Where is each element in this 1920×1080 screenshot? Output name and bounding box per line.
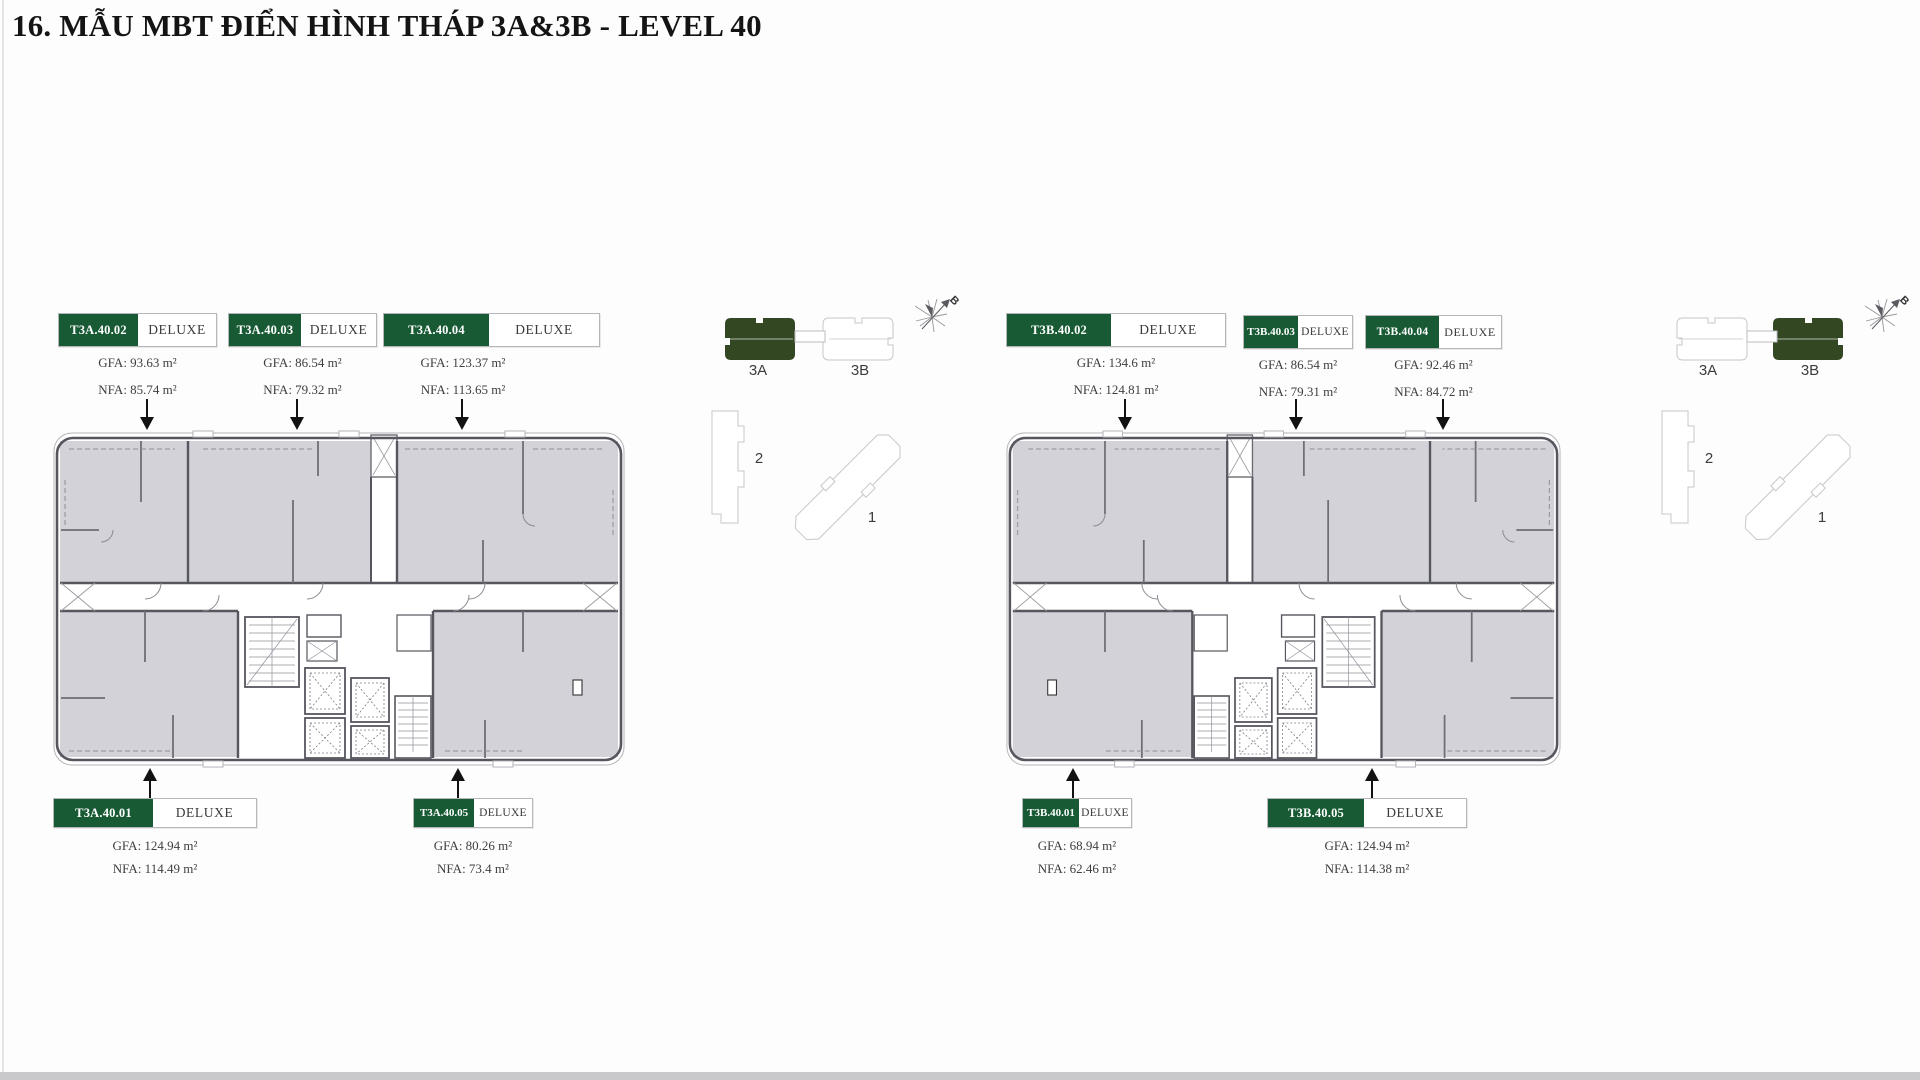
unit-nfa: NFA: 113.65 m² (383, 382, 543, 397)
unit-type: DELUXE (1439, 316, 1501, 348)
keyplan-label-3a: 3A (749, 362, 767, 379)
unit-gfa: GFA: 123.37 m² (383, 355, 543, 370)
unit-label-group-t3b-40-03: T3B.40.03 DELUXE GFA: 86.54 m² NFA: 79.3… (1243, 315, 1353, 399)
compass-north-label: B (1897, 295, 1910, 308)
keyplan-label-3b: 3B (1801, 362, 1819, 379)
unit-badge: T3A.40.01 DELUXE (53, 798, 257, 828)
keyplan-label-3b: 3B (851, 362, 869, 379)
bottom-edge-strip (0, 1072, 1920, 1080)
unit-label-group-t3b-40-02: T3B.40.02 DELUXE GFA: 134.6 m² NFA: 124.… (1006, 313, 1226, 397)
keyplan-label-zone1: 1 (868, 509, 876, 526)
keyplan-label-zone1: 1 (1818, 509, 1826, 526)
unit-code: T3B.40.02 (1007, 314, 1111, 346)
unit-gfa: GFA: 80.26 m² (413, 838, 533, 853)
unit-type: DELUXE (1298, 316, 1352, 348)
unit-gfa: GFA: 86.54 m² (228, 355, 377, 370)
unit-type: DELUXE (474, 799, 532, 827)
unit-code: T3A.40.01 (54, 799, 153, 827)
unit-label-group-t3a-40-03: T3A.40.03 DELUXE GFA: 86.54 m² NFA: 79.3… (228, 313, 377, 397)
unit-code: T3B.40.05 (1268, 799, 1364, 827)
unit-type: DELUXE (489, 314, 599, 346)
unit-code: T3A.40.04 (384, 314, 489, 346)
floorplan-tower-3b (1006, 430, 1561, 768)
unit-gfa: GFA: 93.63 m² (58, 355, 217, 370)
unit-badge: T3A.40.04 DELUXE (383, 313, 600, 347)
unit-label-group-t3a-40-01: T3A.40.01 DELUXE GFA: 124.94 m² NFA: 114… (53, 798, 257, 876)
unit-nfa: NFA: 124.81 m² (1006, 382, 1226, 397)
unit-nfa: NFA: 73.4 m² (413, 861, 533, 876)
unit-nfa: NFA: 114.38 m² (1267, 861, 1467, 876)
unit-code: T3B.40.01 (1023, 799, 1079, 827)
unit-badge: T3A.40.05 DELUXE (413, 798, 533, 828)
compass-north-label: B (947, 295, 960, 308)
keyplan-tower-3a: 3A 3B 2 1 B (700, 295, 960, 545)
page-title: 16. MẪU MBT ĐIỂN HÌNH THÁP 3A&3B - LEVEL… (12, 8, 762, 44)
unit-badge: T3B.40.01 DELUXE (1022, 798, 1132, 828)
compass-icon (1865, 299, 1900, 332)
unit-gfa: GFA: 68.94 m² (1022, 838, 1132, 853)
unit-gfa: GFA: 124.94 m² (53, 838, 257, 853)
unit-type: DELUXE (1111, 314, 1225, 346)
unit-badge: T3B.40.04 DELUXE (1365, 315, 1502, 349)
unit-label-group-t3b-40-04: T3B.40.04 DELUXE GFA: 92.46 m² NFA: 84.7… (1365, 315, 1502, 399)
unit-gfa: GFA: 92.46 m² (1365, 357, 1502, 372)
floorplan-tower-3a (53, 430, 625, 768)
compass-icon (915, 299, 950, 332)
unit-type: DELUXE (138, 314, 216, 346)
unit-badge: T3B.40.02 DELUXE (1006, 313, 1226, 347)
unit-label-group-t3a-40-05: T3A.40.05 DELUXE GFA: 80.26 m² NFA: 73.4… (413, 798, 533, 876)
unit-badge: T3B.40.03 DELUXE (1243, 315, 1353, 349)
unit-type: DELUXE (1364, 799, 1466, 827)
unit-code: T3A.40.05 (414, 799, 474, 827)
left-edge-line (2, 0, 4, 1080)
unit-nfa: NFA: 114.49 m² (53, 861, 257, 876)
unit-nfa: NFA: 79.32 m² (228, 382, 377, 397)
unit-gfa: GFA: 134.6 m² (1006, 355, 1226, 370)
unit-gfa: GFA: 124.94 m² (1267, 838, 1467, 853)
unit-nfa: NFA: 84.72 m² (1365, 384, 1502, 399)
unit-code: T3A.40.02 (59, 314, 138, 346)
unit-label-group-t3a-40-04: T3A.40.04 DELUXE GFA: 123.37 m² NFA: 113… (383, 313, 600, 397)
unit-label-group-t3b-40-05: T3B.40.05 DELUXE GFA: 124.94 m² NFA: 114… (1267, 798, 1467, 876)
unit-label-group-t3b-40-01: T3B.40.01 DELUXE GFA: 68.94 m² NFA: 62.4… (1022, 798, 1132, 876)
keyplan-tower-3b: 3A 3B 2 1 B (1650, 295, 1910, 545)
unit-nfa: NFA: 62.46 m² (1022, 861, 1132, 876)
unit-code: T3B.40.04 (1366, 316, 1439, 348)
unit-badge: T3A.40.02 DELUXE (58, 313, 217, 347)
unit-label-group-t3a-40-02: T3A.40.02 DELUXE GFA: 93.63 m² NFA: 85.7… (58, 313, 217, 397)
unit-type: DELUXE (1079, 799, 1131, 827)
unit-code: T3A.40.03 (229, 314, 301, 346)
unit-gfa: GFA: 86.54 m² (1243, 357, 1353, 372)
keyplan-label-3a: 3A (1699, 362, 1717, 379)
unit-badge: T3B.40.05 DELUXE (1267, 798, 1467, 828)
floorplan-sheet: 16. MẪU MBT ĐIỂN HÌNH THÁP 3A&3B - LEVEL… (0, 0, 1920, 1080)
unit-badge: T3A.40.03 DELUXE (228, 313, 377, 347)
keyplan-label-zone2: 2 (1705, 450, 1713, 467)
unit-nfa: NFA: 79.31 m² (1243, 384, 1353, 399)
unit-code: T3B.40.03 (1244, 316, 1298, 348)
keyplan-label-zone2: 2 (755, 450, 763, 467)
unit-nfa: NFA: 85.74 m² (58, 382, 217, 397)
unit-type: DELUXE (153, 799, 256, 827)
unit-type: DELUXE (301, 314, 376, 346)
